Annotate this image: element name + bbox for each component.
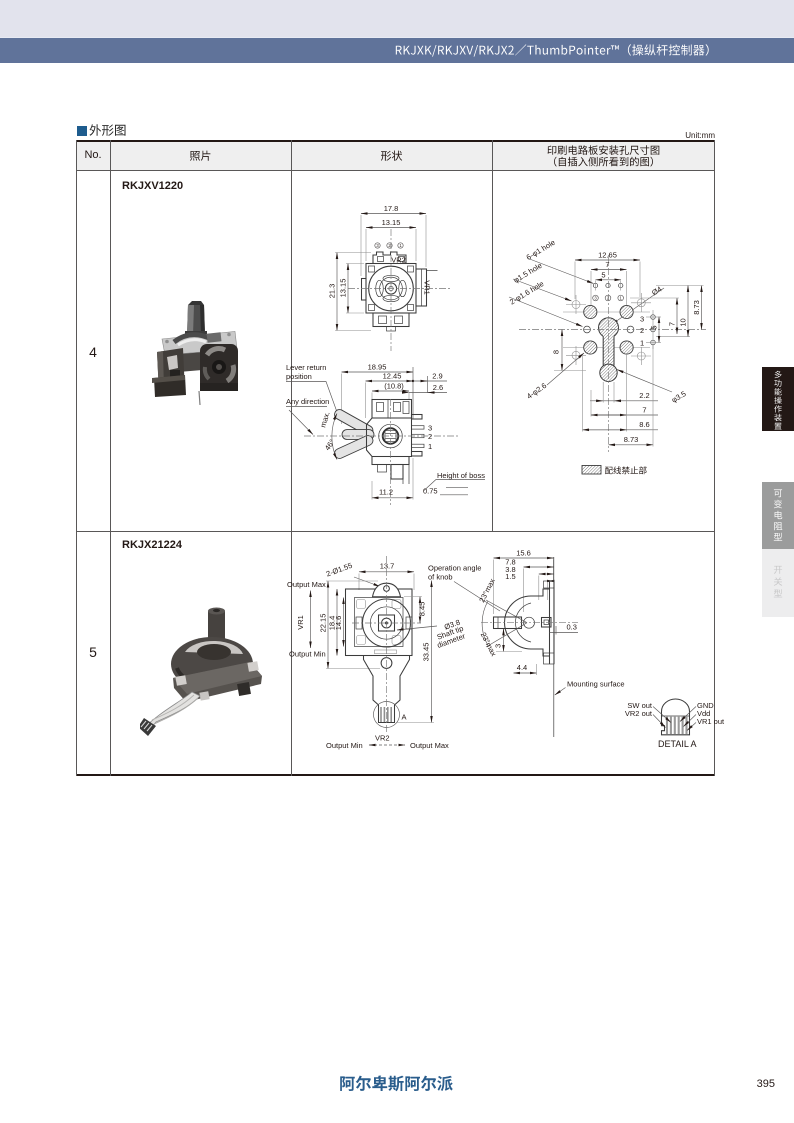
svg-text:3: 3 [376, 243, 379, 248]
svg-text:Any direction: Any direction [286, 397, 329, 406]
svg-text:17.8: 17.8 [384, 204, 399, 213]
svg-text:7: 7 [668, 322, 677, 326]
svg-text:Output Min: Output Min [326, 741, 363, 750]
svg-text:max.: max. [318, 410, 331, 428]
svg-text:13.15: 13.15 [339, 279, 348, 298]
svg-text:12.45: 12.45 [383, 372, 402, 381]
svg-text:1: 1 [620, 296, 623, 301]
svg-text:46°: 46° [323, 438, 337, 452]
svg-text:22.15: 22.15 [319, 614, 328, 633]
svg-text:Output Max: Output Max [287, 580, 326, 589]
svg-text:8.73: 8.73 [692, 300, 701, 315]
svg-text:2.9: 2.9 [432, 372, 442, 381]
svg-text:3: 3 [594, 296, 597, 301]
svg-text:7: 7 [605, 260, 609, 269]
svg-text:3: 3 [428, 424, 432, 433]
svg-text:2.6: 2.6 [433, 383, 443, 392]
svg-text:1.5: 1.5 [505, 572, 515, 581]
svg-text:Lever return: Lever return [286, 363, 326, 372]
svg-text:1: 1 [640, 338, 644, 347]
svg-text:2-Ø1.55: 2-Ø1.55 [325, 561, 354, 579]
svg-text:φ3.5: φ3.5 [670, 389, 688, 405]
svg-text:13.7: 13.7 [380, 562, 395, 571]
svg-text:VR1: VR1 [296, 615, 305, 630]
svg-text:5: 5 [601, 271, 605, 280]
svg-text:4-φ2.6: 4-φ2.6 [525, 381, 548, 401]
svg-text:Ø4: Ø4 [650, 284, 663, 297]
svg-text:Height of boss: Height of boss [437, 471, 485, 480]
svg-text:3: 3 [640, 314, 644, 323]
svg-text:18.95: 18.95 [368, 363, 387, 372]
svg-text:6-φ1 hole: 6-φ1 hole [525, 238, 557, 262]
svg-text:14.6: 14.6 [334, 616, 343, 631]
svg-text:Operation angle: Operation angle [428, 564, 481, 573]
svg-text:A: A [402, 713, 407, 722]
svg-text:4.4: 4.4 [517, 663, 527, 672]
svg-text:8.6: 8.6 [639, 420, 649, 429]
svg-text:VR1: VR1 [423, 280, 432, 295]
svg-text:23°max: 23°max [477, 577, 497, 604]
svg-text:12.65: 12.65 [598, 251, 617, 260]
svg-text:of knob: of knob [428, 573, 453, 582]
svg-text:2-φ1.6 hole: 2-φ1.6 hole [508, 279, 545, 306]
svg-text:1: 1 [399, 243, 402, 248]
svg-text:7: 7 [642, 405, 646, 414]
svg-text:3: 3 [494, 644, 503, 648]
svg-text:position: position [286, 372, 312, 381]
svg-text:8.73: 8.73 [624, 435, 639, 444]
svg-text:(10.8): (10.8) [384, 382, 404, 391]
svg-text:VR2: VR2 [375, 734, 390, 743]
svg-text:Output Max: Output Max [410, 741, 449, 750]
svg-text:33.45: 33.45 [422, 643, 431, 662]
svg-text:VR1 out: VR1 out [697, 717, 725, 726]
svg-text:1: 1 [428, 442, 432, 451]
svg-text:8.45: 8.45 [418, 602, 427, 617]
svg-text:13.15: 13.15 [382, 218, 401, 227]
svg-text:8: 8 [552, 350, 561, 354]
svg-text:VR2 out: VR2 out [625, 709, 653, 718]
svg-text:0.3: 0.3 [567, 623, 577, 632]
svg-text:2: 2 [428, 432, 432, 441]
svg-text:11.2: 11.2 [379, 488, 393, 497]
svg-text:2: 2 [640, 326, 644, 335]
svg-text:Output Min: Output Min [289, 650, 326, 659]
svg-text:DETAIL A: DETAIL A [658, 739, 697, 749]
svg-text:21.3: 21.3 [328, 284, 337, 299]
svg-text:10: 10 [679, 318, 688, 326]
svg-text:Mounting surface: Mounting surface [567, 680, 625, 689]
svg-text:2.2: 2.2 [639, 391, 649, 400]
svg-text:15.6: 15.6 [516, 549, 531, 558]
svg-text:0.75: 0.75 [423, 487, 438, 496]
